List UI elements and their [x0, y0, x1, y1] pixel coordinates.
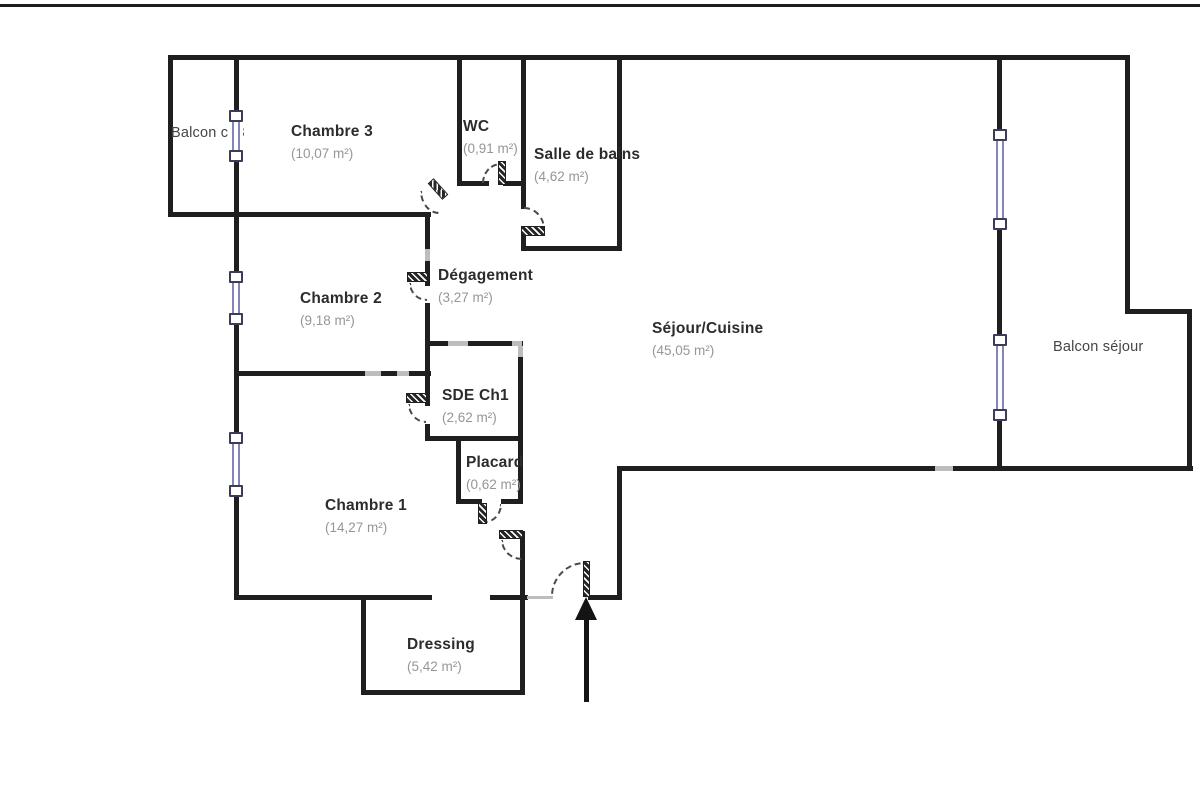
window-sejour-1-part — [993, 129, 1007, 141]
window-sejour-2-part — [993, 409, 1007, 421]
wall-faded-segment-1 — [397, 371, 409, 376]
window-chambre-1-part — [229, 432, 243, 444]
window-balcon-ch3-part — [229, 110, 243, 122]
window-chambre-2-part — [232, 279, 234, 317]
wall-balcony-east-lower — [1187, 309, 1192, 471]
room-label-sejour-cuisine: Séjour/Cuisine(45,05 m²) — [652, 321, 763, 357]
door-chambre-2-swing-arc — [409, 283, 427, 301]
wall-faded-segment-6 — [935, 466, 953, 471]
door-sde-ch1-leaf-icon — [406, 393, 427, 403]
window-sejour-2-icon — [993, 334, 1007, 421]
door-sde-ch1-swing-arc — [408, 404, 426, 423]
wall-sdb-bottom — [521, 246, 622, 251]
window-chambre-2-icon — [229, 271, 243, 325]
room-label-placard: Placard(0,62 m²) — [466, 455, 523, 491]
door-chambre-1-leaf-icon — [499, 530, 523, 539]
room-name-chambre-2: Chambre 2 — [300, 291, 382, 307]
window-sejour-2-part — [996, 342, 998, 413]
room-label-sde-ch1: SDE Ch1(2,62 m²) — [442, 388, 509, 424]
room-area-dressing: (5,42 m²) — [407, 660, 475, 674]
window-chambre-1-part — [238, 440, 240, 489]
window-sejour-2-part — [1002, 342, 1004, 413]
room-label-chambre-1: Chambre 1(14,27 m²) — [325, 498, 407, 534]
window-chambre-1-part — [229, 485, 243, 497]
door-chambre-3-swing-arc — [420, 191, 439, 214]
room-label-balcon-sejour: Balcon séjour — [1053, 340, 1143, 355]
window-balcon-ch3-part — [232, 118, 234, 154]
room-name-sde-ch1: SDE Ch1 — [442, 388, 509, 404]
room-area-placard: (0,62 m²) — [466, 478, 523, 492]
door-chambre-2-leaf-icon — [407, 272, 428, 282]
window-chambre-2-part — [238, 279, 240, 317]
room-label-chambre-3: Chambre 3(10,07 m²) — [291, 124, 373, 160]
wall-chambre1-bottom — [234, 595, 432, 600]
window-chambre-2-part — [229, 313, 243, 325]
room-area-sde-ch1: (2,62 m²) — [442, 411, 509, 425]
floor-plan: Balcon ch3Chambre 3(10,07 m²)WC(0,91 m²)… — [0, 0, 1200, 800]
room-label-salle-de-bains: Salle de bains(4,62 m²) — [534, 147, 640, 183]
wall-sde-top — [425, 341, 523, 346]
room-area-chambre-1: (14,27 m²) — [325, 521, 407, 535]
wall-placard-bottom-right — [501, 499, 523, 504]
room-name-degagement: Dégagement — [438, 268, 533, 284]
room-name-wc: WC — [463, 119, 518, 135]
room-name-dressing: Dressing — [407, 637, 475, 653]
room-area-sejour-cuisine: (45,05 m²) — [652, 344, 763, 358]
door-placard-swing-arc — [485, 504, 502, 523]
wall-sdb-west — [521, 55, 526, 209]
window-chambre-1-icon — [229, 432, 243, 497]
wall-faded-segment-0 — [365, 371, 381, 376]
window-balcon-ch3-icon — [229, 110, 243, 162]
wall-placard-west — [456, 436, 461, 504]
window-balcon-ch3-part — [229, 150, 243, 162]
room-name-chambre-1: Chambre 1 — [325, 498, 407, 514]
wall-faded-segment-2 — [448, 341, 468, 346]
room-name-salle-de-bains: Salle de bains — [534, 147, 640, 163]
room-area-degagement: (3,27 m²) — [438, 291, 533, 305]
wall-balcony-step — [1125, 309, 1192, 314]
window-balcon-ch3-part — [238, 118, 240, 154]
door-placard-leaf-icon — [478, 503, 487, 524]
room-name-placard: Placard — [466, 455, 523, 471]
room-name-sejour-cuisine: Séjour/Cuisine — [652, 321, 763, 337]
window-sejour-1-part — [1002, 137, 1004, 222]
entry-arrow-head-icon — [575, 597, 597, 620]
room-area-chambre-3: (10,07 m²) — [291, 147, 373, 161]
wall-wc-west — [457, 55, 462, 186]
image-top-border-line — [0, 4, 1200, 7]
window-sejour-1-part — [996, 137, 998, 222]
wall-sejour-balcony-bottom — [617, 466, 1193, 471]
window-sejour-2-part — [993, 334, 1007, 346]
door-chambre-1-swing-arc — [501, 540, 522, 560]
wall-degagement-west-b — [425, 303, 430, 406]
wall-faded-segment-7 — [527, 596, 553, 599]
window-sejour-1-part — [993, 218, 1007, 230]
wall-entry-east — [617, 466, 622, 600]
entry-arrow-shaft — [584, 619, 589, 702]
wall-balcony-east-upper — [1125, 55, 1130, 314]
room-name-balcon-sejour: Balcon séjour — [1053, 340, 1143, 355]
room-name-chambre-3: Chambre 3 — [291, 124, 373, 140]
room-label-dressing: Dressing(5,42 m²) — [407, 637, 475, 673]
door-sdb-leaf-icon — [521, 226, 545, 236]
wall-outer-top — [168, 55, 1130, 60]
room-label-wc: WC(0,91 m²) — [463, 119, 518, 155]
window-chambre-1-part — [232, 440, 234, 489]
room-label-degagement: Dégagement(3,27 m²) — [438, 268, 533, 304]
wall-faded-segment-5 — [425, 249, 430, 261]
room-area-chambre-2: (9,18 m²) — [300, 314, 382, 328]
wall-sde-bottom — [425, 436, 523, 441]
room-area-salle-de-bains: (4,62 m²) — [534, 170, 640, 184]
wall-chambre3-bottom — [168, 212, 431, 217]
door-entry-swing-arc — [551, 562, 585, 596]
room-label-chambre-2: Chambre 2(9,18 m²) — [300, 291, 382, 327]
room-area-wc: (0,91 m²) — [463, 142, 518, 156]
window-chambre-2-part — [229, 271, 243, 283]
door-wc-leaf-icon — [498, 161, 506, 185]
door-entry-leaf-icon — [583, 561, 590, 597]
wall-dressing-west — [361, 595, 366, 695]
wall-dressing-bottom — [361, 690, 525, 695]
wall-faded-segment-4 — [518, 346, 523, 357]
window-sejour-1-icon — [993, 129, 1007, 230]
